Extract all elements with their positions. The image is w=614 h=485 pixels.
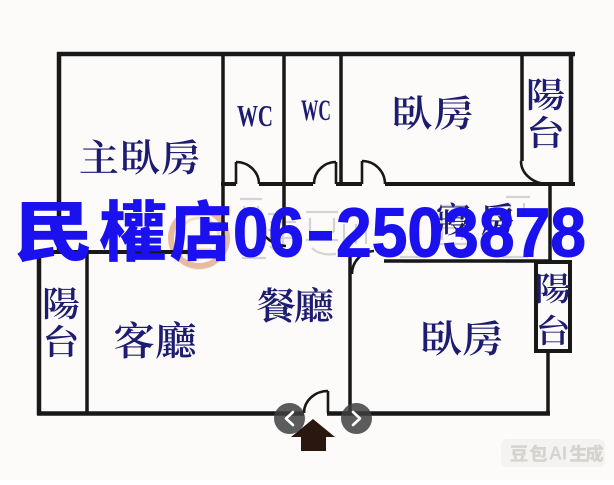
svg-text:WC: WC — [237, 98, 273, 133]
svg-text:AI: AI — [549, 444, 567, 464]
svg-text:2503878: 2503878 — [336, 194, 586, 272]
svg-text:06: 06 — [233, 194, 304, 272]
svg-text:WC: WC — [301, 94, 331, 127]
